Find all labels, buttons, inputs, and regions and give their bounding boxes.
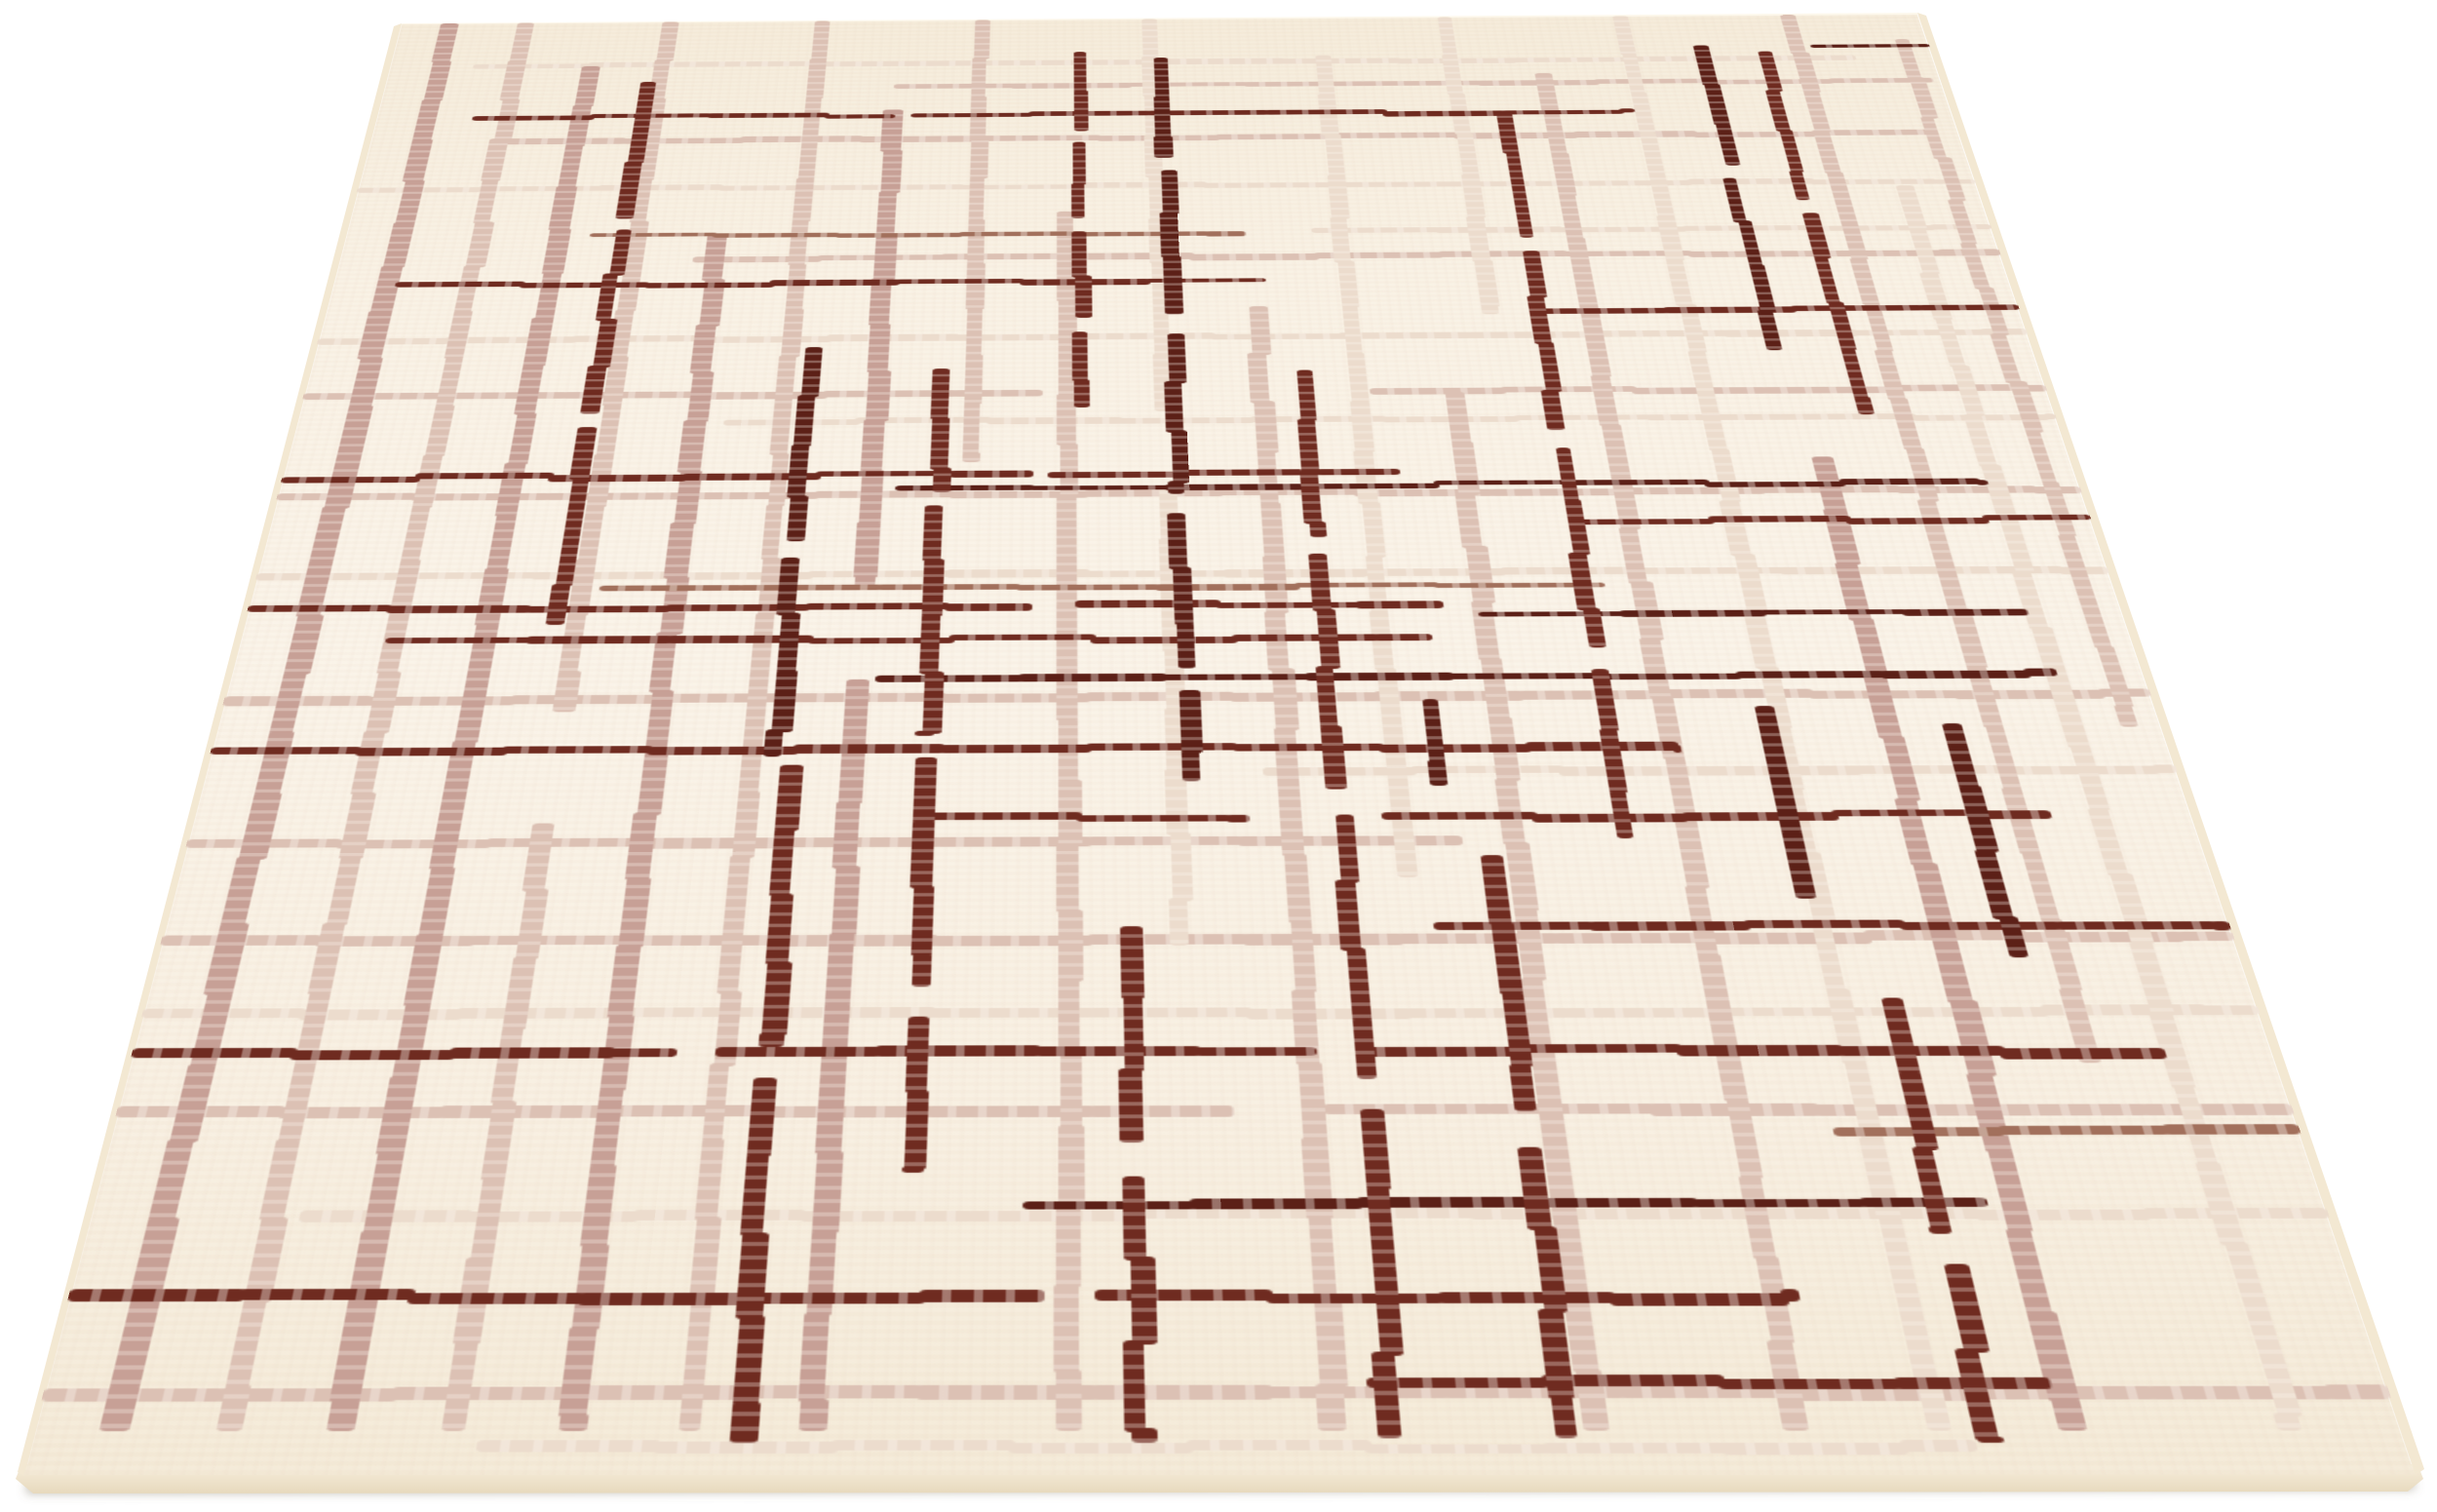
pattern-stroke bbox=[1912, 1146, 1952, 1229]
product-photo-canvas bbox=[0, 0, 2437, 1512]
pattern-stroke bbox=[1881, 997, 1920, 1074]
pattern-stroke bbox=[1954, 1348, 2000, 1441]
pattern-stroke bbox=[1978, 1437, 2005, 1443]
pattern-stroke bbox=[1929, 1225, 1952, 1233]
pattern-stroke bbox=[1944, 1263, 1990, 1352]
pattern-stroke bbox=[1899, 1070, 1939, 1150]
